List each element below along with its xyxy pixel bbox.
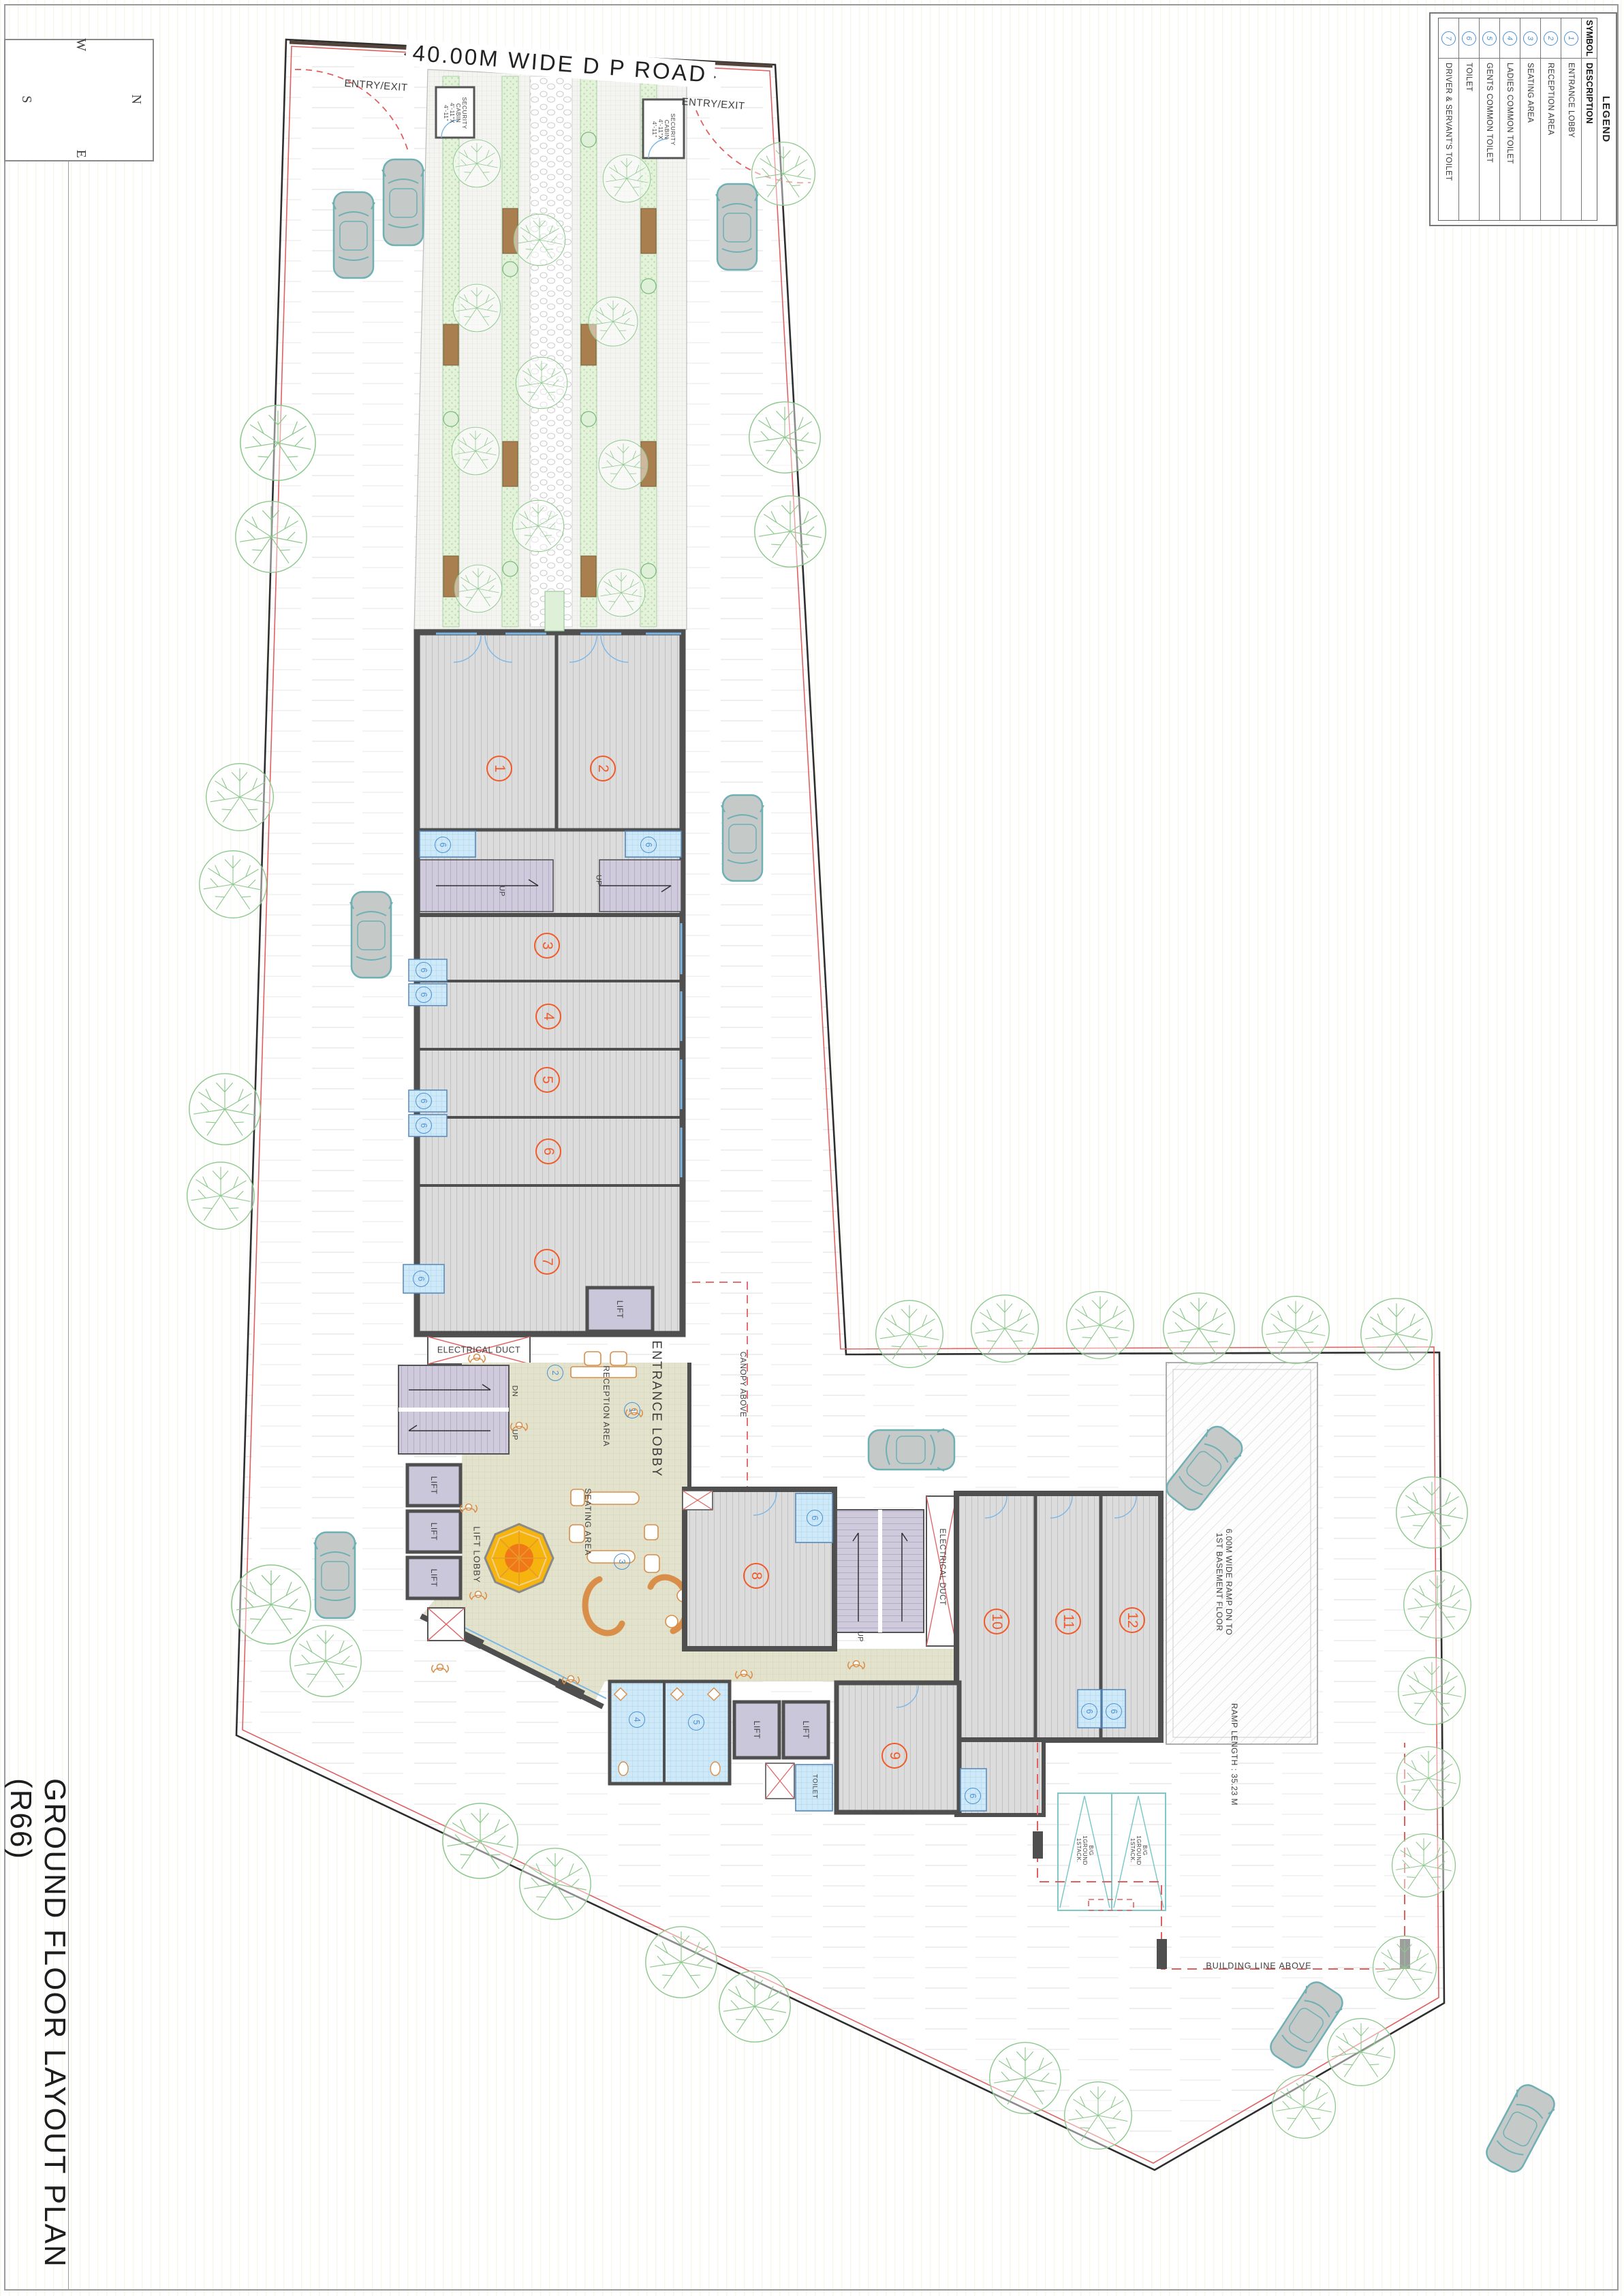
reception-area-label: RECEPTION AREA: [602, 1365, 611, 1446]
legend-desc-5: GENTS COMMON TOILET: [1480, 59, 1499, 220]
legend-row: 3 SEATING AREA: [1520, 18, 1541, 220]
unit-circle-10: 10: [984, 1609, 1010, 1634]
ramp-length-label: RAMP LENGTH : 35.23 M: [1230, 1703, 1239, 1805]
ref-circle-ladies: 4: [629, 1711, 645, 1728]
ref-circle-entrance: 1: [624, 1402, 640, 1418]
legend-desc-3: SEATING AREA: [1520, 59, 1540, 220]
octagon-feature: [485, 1524, 553, 1592]
unit-circle-9: 9: [881, 1743, 907, 1769]
seating-area-label: SEATING AREA: [583, 1488, 593, 1555]
unit-circle-1: 1: [486, 756, 512, 781]
security-cabin-label-right: SECURITY CABIN 4'-11"X 4'-11": [651, 114, 676, 146]
up-label: UP: [594, 875, 603, 886]
legend-col-symbol: SYMBOL: [1582, 18, 1597, 59]
compass-north-label: N: [127, 95, 144, 105]
ref-circle-reception: 2: [547, 1365, 563, 1381]
ref-circle-toilet: 6: [416, 987, 432, 1003]
legend-header-row: SYMBOL DESCRIPTION: [1582, 18, 1597, 220]
ref-circle-toilet: 6: [413, 1271, 429, 1287]
compass-south-label: S: [18, 95, 34, 104]
dn-label: DN: [510, 1386, 519, 1397]
legend-title: LEGEND: [1600, 18, 1612, 221]
lift-label: LIFT: [429, 1476, 439, 1495]
ref-circle-toilet: 6: [807, 1510, 823, 1526]
building-line-above-label: BUILDING LINE ABOVE: [1206, 1961, 1311, 1972]
legend-desc-6: TOILET: [1459, 59, 1479, 220]
legend-row: 6 TOILET: [1459, 18, 1480, 220]
ref-circle-toilet: 6: [435, 837, 451, 853]
legend-desc-2: RECEPTION AREA: [1541, 59, 1561, 220]
legend-row: 5 GENTS COMMON TOILET: [1480, 18, 1500, 220]
legend-symbol-4: 4: [1503, 31, 1517, 46]
up-label: UP: [856, 1631, 864, 1642]
security-cabin-label-left: SECURITY CABIN 4'-11"X 4'-11": [443, 97, 467, 129]
ref-circle-toilet: 6: [416, 1117, 432, 1134]
unit-circle-4: 4: [535, 1004, 561, 1029]
unit-circle-6: 6: [535, 1138, 561, 1164]
site-plan-graphics: [0, 0, 1624, 2296]
unit-circle-12: 12: [1119, 1607, 1145, 1633]
legend-desc-4: LADIES COMMON TOILET: [1500, 59, 1520, 220]
ref-circle-toilet: 6: [1081, 1703, 1097, 1720]
legend: LEGEND SYMBOL DESCRIPTION 1 ENTRANCE LOB…: [1429, 12, 1617, 226]
up-label: UP: [497, 886, 506, 897]
unit-circle-5: 5: [534, 1067, 560, 1093]
entrance-lobby-label: ENTRANCE LOBBY: [649, 1340, 663, 1477]
lift-label: LIFT: [615, 1301, 625, 1319]
up-label: UP: [510, 1429, 519, 1440]
ref-circle-toilet: 6: [640, 837, 657, 853]
ref-circle-toilet: 6: [416, 1093, 432, 1109]
legend-col-description: DESCRIPTION: [1582, 59, 1597, 220]
legend-symbol-3: 3: [1523, 31, 1537, 46]
unit-circle-11: 11: [1055, 1609, 1081, 1634]
lift-label: LIFT: [429, 1569, 439, 1587]
legend-symbol-7: 7: [1441, 31, 1456, 46]
basement-ramp: [1166, 1363, 1317, 1744]
lift-label: LIFT: [752, 1721, 762, 1739]
legend-row: 4 LADIES COMMON TOILET: [1500, 18, 1520, 220]
stack-parking-label: B/G 1GROUND 1STACK.: [1076, 1835, 1093, 1865]
ref-circle-toilet: 6: [965, 1788, 981, 1804]
legend-table: SYMBOL DESCRIPTION 1 ENTRANCE LOBBY 2 RE…: [1438, 18, 1597, 221]
electrical-duct-label-v: ELECTRICAL DUCT: [937, 1528, 946, 1605]
compass-east-label: E: [72, 150, 89, 159]
unit-circle-8: 8: [743, 1563, 769, 1589]
toilet-label: TOILET: [811, 1774, 818, 1799]
legend-desc-7: DRIVER & SERVANT'S TOILET: [1439, 59, 1458, 220]
canopy-above-label: CANOPY ABOVE: [737, 1352, 747, 1418]
legend-symbol-2: 2: [1544, 31, 1558, 46]
electrical-duct-label-h: ELECTRICAL DUCT: [437, 1346, 520, 1356]
legend-symbol-6: 6: [1462, 31, 1476, 46]
legend-symbol-1: 1: [1564, 31, 1578, 46]
building-vertical-wing: [403, 591, 683, 1334]
legend-row: 1 ENTRANCE LOBBY: [1561, 18, 1582, 220]
lift-label: LIFT: [429, 1523, 439, 1541]
unit-circle-3: 3: [534, 933, 560, 959]
legend-row: 2 RECEPTION AREA: [1541, 18, 1561, 220]
legend-desc-1: ENTRANCE LOBBY: [1561, 59, 1581, 220]
unit-circle-7: 7: [534, 1249, 560, 1275]
legend-row: 7 DRIVER & SERVANT'S TOILET: [1439, 18, 1459, 220]
ramp-label: 6.00M WIDE RAMP DN TO 1ST BASEMENT FLOOR: [1215, 1529, 1234, 1636]
sheet-title: GROUND FLOOR LAYOUT PLAN (R66): [9, 1778, 66, 2296]
ref-circle-seating: 3: [614, 1553, 630, 1570]
lift-lobby-label: LIFT LOBBY: [471, 1526, 482, 1583]
ref-circle-toilet: 6: [1106, 1703, 1122, 1720]
drawing-sheet: W N E S 40.00M WIDE D P ROAD ENTRY/EXIT …: [0, 0, 1624, 2296]
ref-circle-gents: 5: [688, 1714, 704, 1731]
car-icon: [382, 159, 424, 245]
legend-symbol-5: 5: [1482, 31, 1497, 46]
unit-circle-2: 2: [590, 756, 616, 781]
lift-label: LIFT: [801, 1721, 811, 1739]
tree-icon: [240, 405, 315, 480]
stack-parking-label: B/G 1GROUND 1STACK.: [1129, 1835, 1147, 1865]
compass-west-label: W: [72, 38, 89, 51]
ref-circle-toilet: 6: [416, 962, 432, 978]
